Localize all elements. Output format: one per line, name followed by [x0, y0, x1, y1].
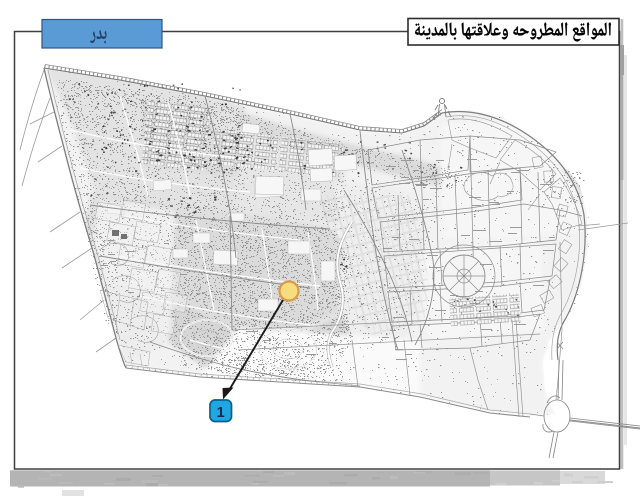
- svg-text:1: 1: [217, 405, 225, 421]
